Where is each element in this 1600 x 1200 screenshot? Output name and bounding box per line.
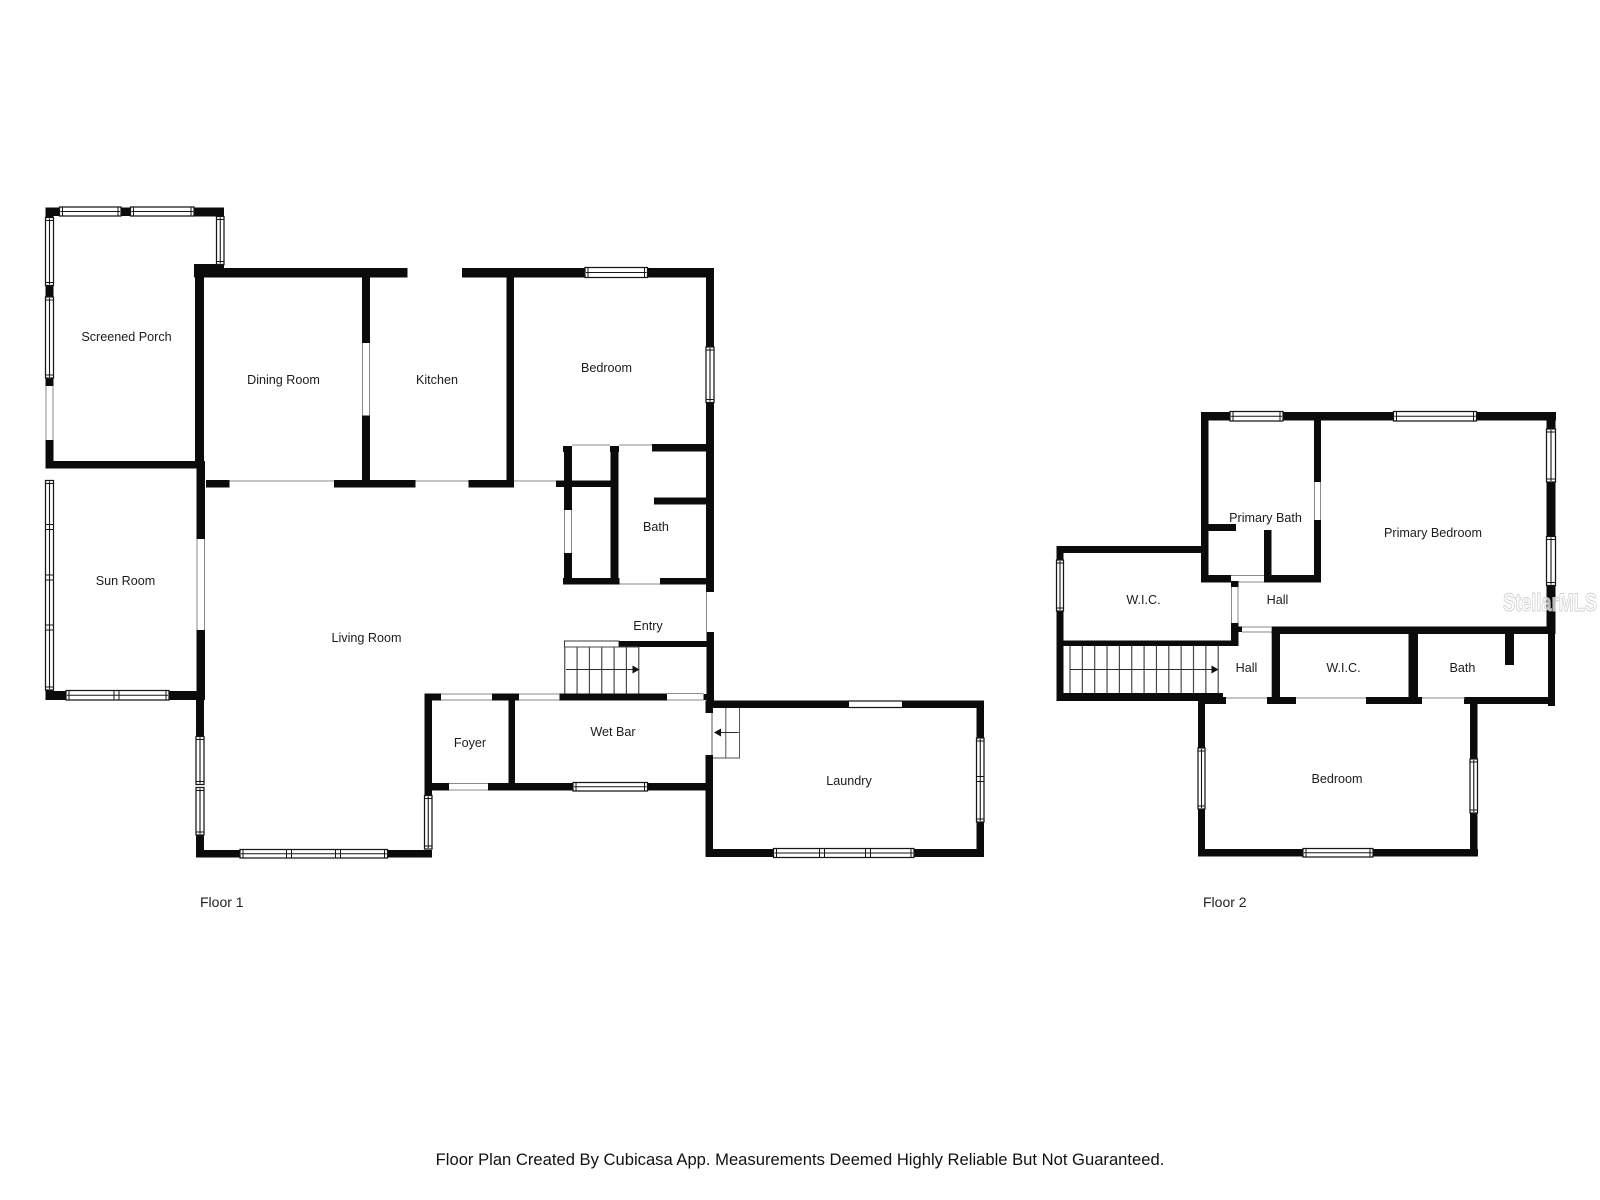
svg-text:W.I.C.: W.I.C. — [1326, 661, 1360, 675]
svg-text:Sun Room: Sun Room — [96, 574, 156, 588]
svg-text:Bath: Bath — [1450, 661, 1476, 675]
svg-text:StellarMLS: StellarMLS — [1503, 589, 1597, 617]
svg-text:Dining Room: Dining Room — [247, 373, 320, 387]
svg-text:Laundry: Laundry — [826, 774, 872, 788]
svg-text:Wet Bar: Wet Bar — [590, 725, 635, 739]
svg-text:Hall: Hall — [1267, 593, 1289, 607]
svg-text:Floor 1: Floor 1 — [200, 894, 244, 910]
svg-text:Floor Plan Created By Cubicasa: Floor Plan Created By Cubicasa App. Meas… — [436, 1150, 1165, 1169]
svg-text:Floor 2: Floor 2 — [1203, 894, 1247, 910]
svg-text:Bedroom: Bedroom — [581, 361, 632, 375]
svg-text:W.I.C.: W.I.C. — [1126, 593, 1160, 607]
svg-text:Living Room: Living Room — [332, 631, 402, 645]
svg-text:Entry: Entry — [633, 619, 663, 633]
svg-text:Kitchen: Kitchen — [416, 373, 458, 387]
svg-text:Primary Bedroom: Primary Bedroom — [1384, 526, 1482, 540]
svg-text:Bedroom: Bedroom — [1311, 772, 1362, 786]
svg-text:Screened Porch: Screened Porch — [81, 330, 171, 344]
svg-text:Primary Bath: Primary Bath — [1229, 511, 1302, 525]
svg-text:Foyer: Foyer — [454, 736, 486, 750]
svg-text:Bath: Bath — [643, 520, 669, 534]
svg-text:Hall: Hall — [1236, 661, 1258, 675]
